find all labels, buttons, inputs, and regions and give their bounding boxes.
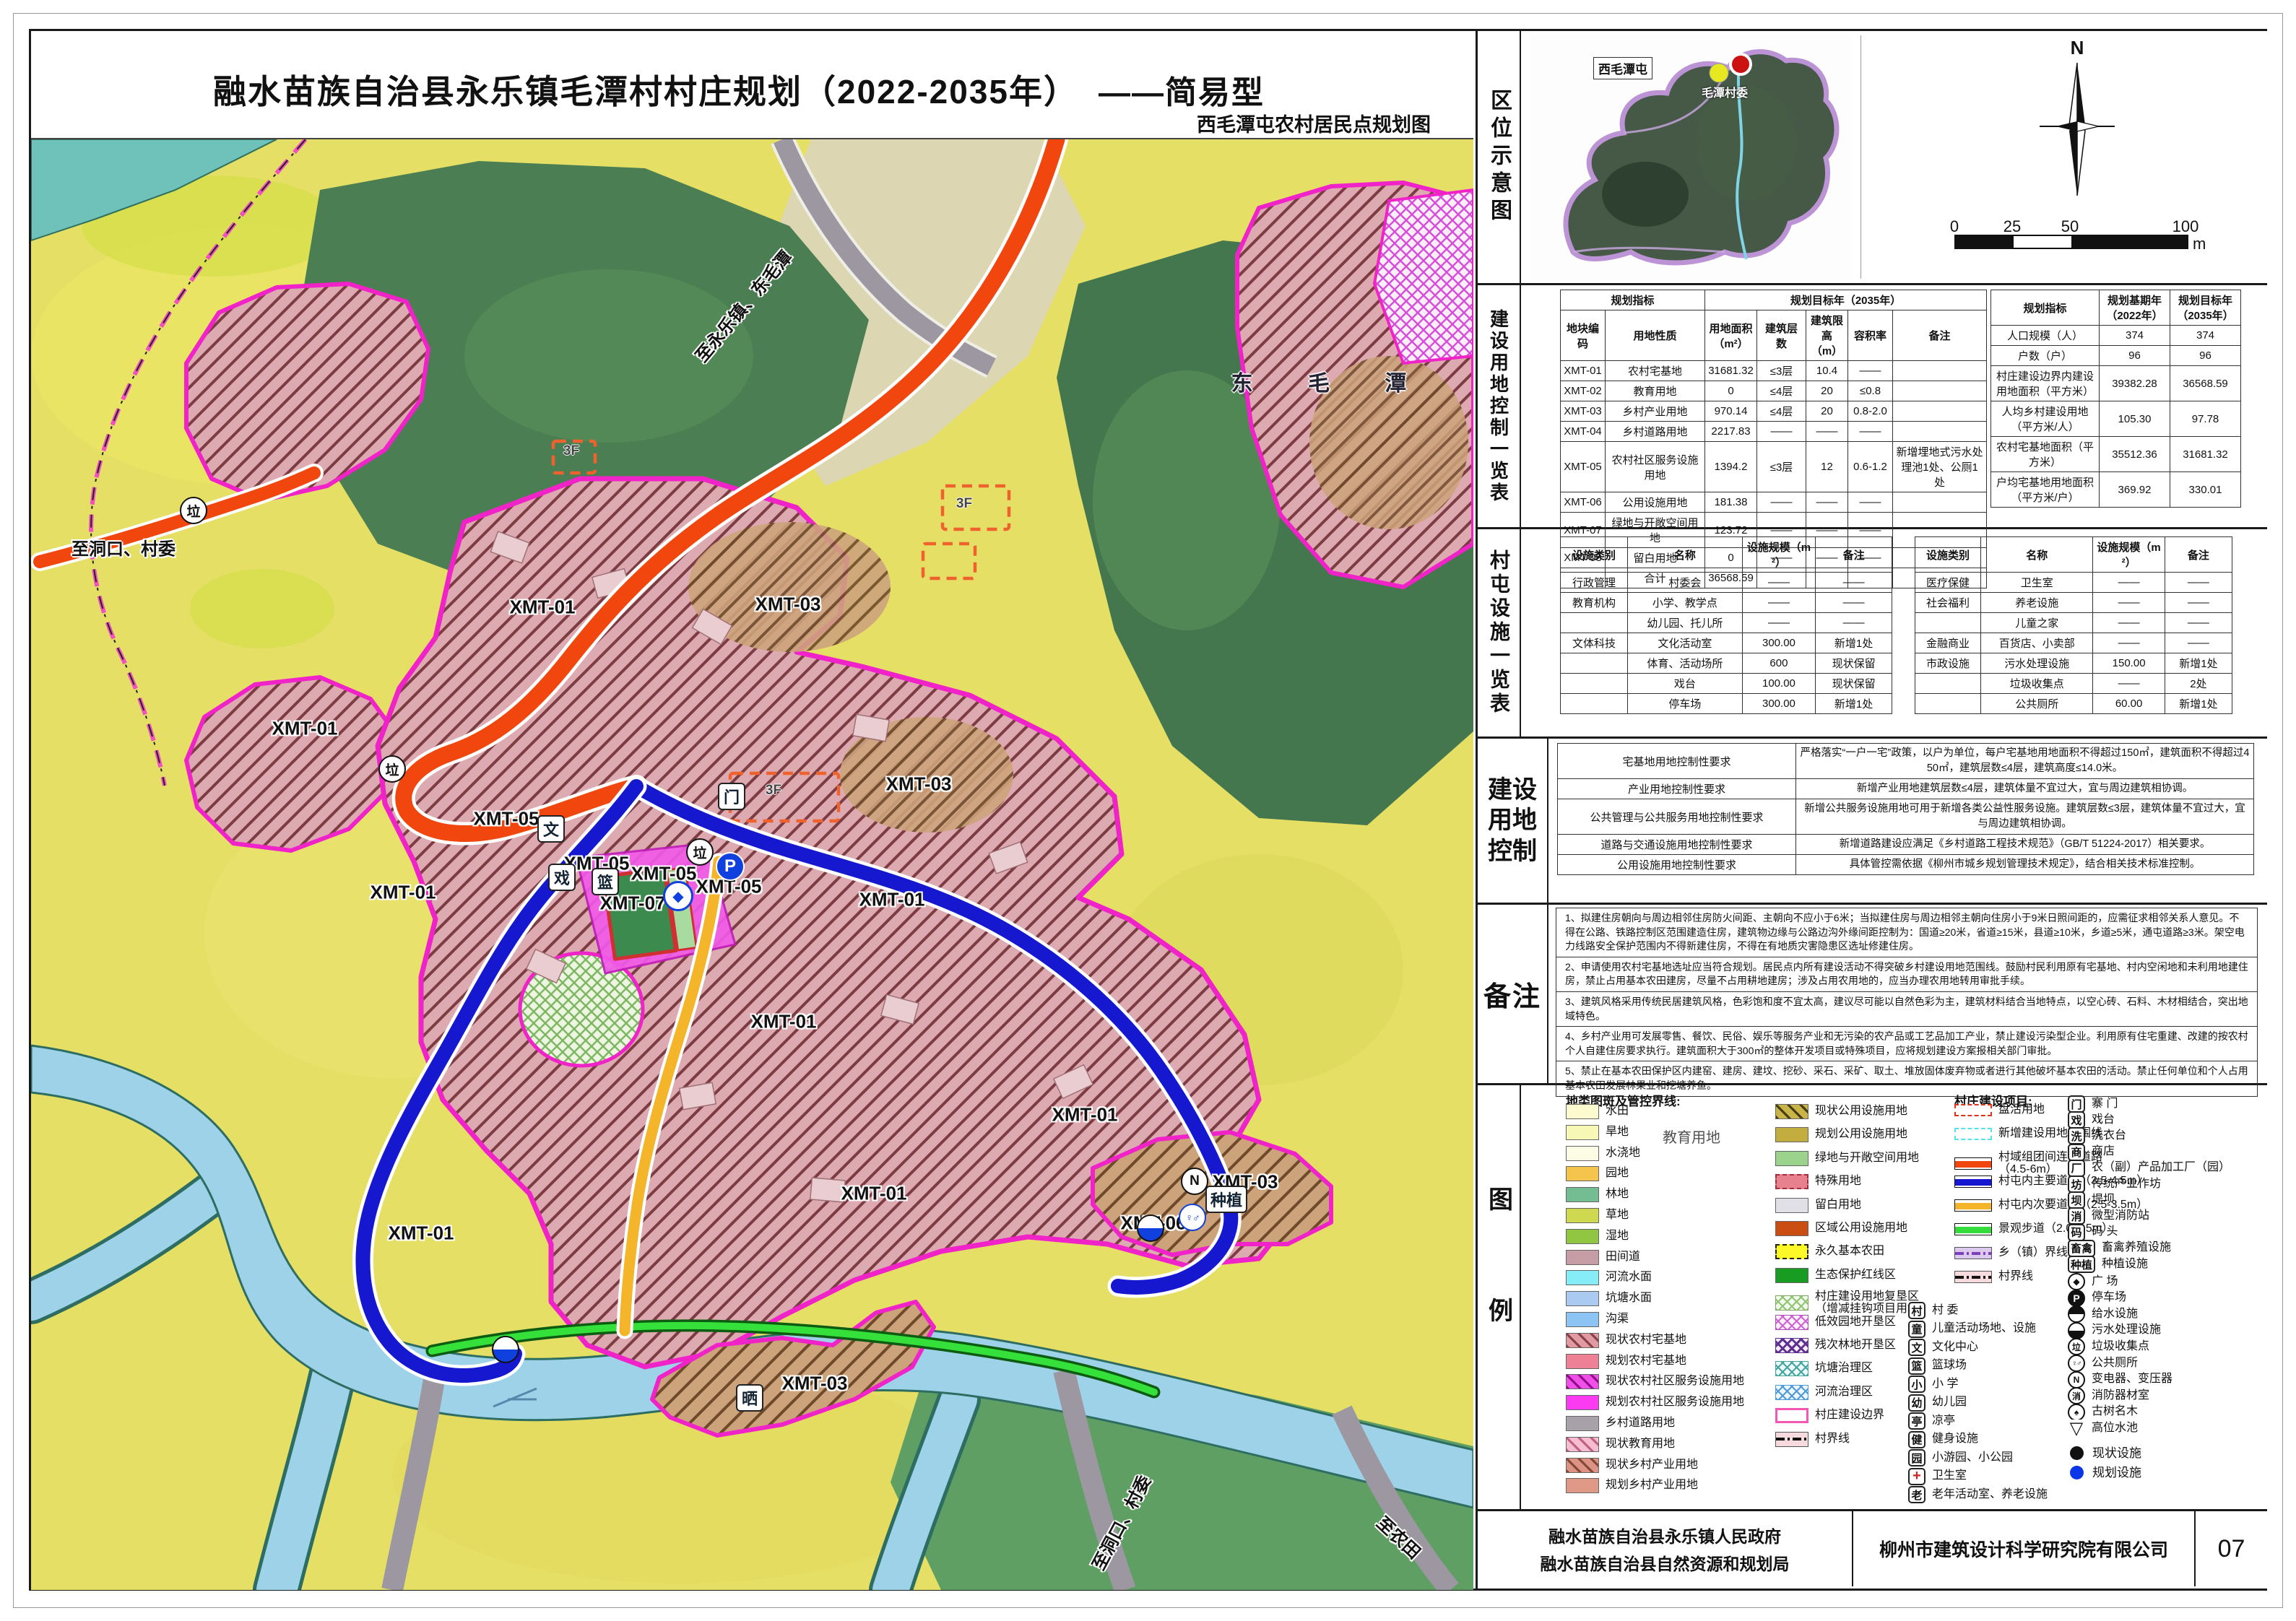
legend-item[interactable]: 村界线: [1775, 1432, 1850, 1447]
map-label: XMT-05: [473, 808, 539, 830]
table-row: XMT-06 公用设施用地 181.38 —— —— ——: [1561, 492, 1987, 513]
legend-item[interactable]: 园地: [1566, 1166, 1629, 1181]
facility-glyph-icon: 消: [2068, 1207, 2085, 1225]
legend-item[interactable]: 盘活用地: [1954, 1104, 2045, 1116]
map-facility-icon[interactable]: 戏: [548, 864, 576, 891]
legend-item[interactable]: 规划公用设施用地: [1775, 1127, 1907, 1142]
location-minimap[interactable]: 西毛潭屯 毛潭村委: [1530, 35, 1852, 279]
legend-item[interactable]: 村界线: [1954, 1271, 2033, 1283]
legend-item[interactable]: 河流治理区: [1775, 1385, 1873, 1400]
legend-swatch: [1566, 1146, 1599, 1161]
table-row: 文体科技 文化活动室 300.00 新增1处: [1561, 633, 1892, 653]
legend-item[interactable]: ◆ 广 场: [2068, 1273, 2118, 1290]
table-row: 戏台 100.00 现状保留: [1561, 674, 1892, 694]
legend-swatch: [1775, 1295, 1808, 1311]
table-row: 教育机构 小学、教学点 —— ——: [1561, 593, 1892, 613]
legend-swatch: [1954, 1223, 1992, 1235]
legend-item[interactable]: 现状农村社区服务设施用地: [1566, 1374, 1744, 1389]
facility-glyph-icon: 园: [1908, 1449, 1925, 1466]
section-notes: 备注 1、拟建住房朝向与周边相邻住房防火间距、主朝向不应小于6米；当拟建住房与周…: [1478, 905, 2267, 1085]
facility-glyph-icon: 童: [1908, 1321, 1925, 1338]
legend-item[interactable]: 码 码 头: [2068, 1224, 2118, 1241]
map-canvas: [31, 139, 1473, 1590]
scale-unit: m: [2193, 235, 2206, 253]
legend-swatch: [1954, 1175, 1992, 1188]
map-label: XMT-01: [1052, 1104, 1117, 1126]
facility-glyph-icon: 老: [1908, 1486, 1925, 1503]
title-text: 融水苗族自治县永乐镇毛潭村村庄规划（2022-2035年）: [213, 73, 1078, 110]
legend-swatch: [1566, 1478, 1599, 1493]
legend-swatch: [1566, 1208, 1599, 1223]
legend-item[interactable]: 水田: [1566, 1104, 1629, 1119]
section-facility-table: 村屯设施一览表 设施类别 名称 设施规模（m²） 备注: [1478, 529, 2267, 739]
legend-item[interactable]: 坑塘治理区: [1775, 1361, 1873, 1376]
facility-glyph-icon: 幼: [1908, 1394, 1925, 1412]
facility-circle-icon: ▽: [2068, 1420, 2085, 1437]
legend-swatch: [1566, 1312, 1599, 1327]
map-label: 东 毛 潭: [1231, 365, 1431, 397]
map-facility-icon[interactable]: ♀♂: [1179, 1204, 1206, 1231]
table-row: 户均宅基地用地面积（平方米/户） 369.92 330.01: [1991, 472, 2241, 508]
table-row: 村庄建设边界内建设用地面积（平方米） 39382.28 36568.59: [1991, 366, 2241, 401]
table-row: 公用设施用地控制性要求 具体管控需依据《柳州市城乡规划管理技术规定》，结合相关技…: [1558, 855, 2254, 875]
section-land-table: 建设用地控制一览表 规划指标 规划目标年（2035年） 地块编码 用地性质: [1478, 285, 2267, 529]
col-header: 备注: [2165, 537, 2232, 573]
facility-circle-icon: [2068, 1322, 2085, 1339]
legend-item[interactable]: P 停车场: [2068, 1290, 2126, 1307]
legend-body: 地类图斑及管控界线: 教育用地 水田 旱地: [1521, 1085, 2267, 1509]
table-row: 公共管理与公共服务用地控制性要求 新增公共服务设施用地可用于新增各类公益性服务设…: [1558, 799, 2254, 835]
col-header: 名称: [1981, 537, 2093, 573]
legend-item[interactable]: 现状公用设施用地: [1775, 1104, 1907, 1119]
facility-table-left: 设施类别 名称 设施规模（m²） 备注 行政管理 村委会: [1560, 536, 1892, 714]
facility-glyph-icon: 畜禽: [2068, 1240, 2095, 1257]
legend-item[interactable]: 永久基本农田: [1775, 1244, 1884, 1259]
legend-swatch: [1566, 1416, 1599, 1431]
legend-swatch: [1566, 1437, 1599, 1452]
col-header: 设施规模（m²）: [1742, 537, 1816, 573]
legend-item[interactable]: 种植 种植设施: [2068, 1256, 2148, 1273]
legend-item[interactable]: 生态保护红线区: [1775, 1268, 1896, 1283]
minimap-committee-label: 毛潭村委: [1702, 83, 1748, 100]
scale-tick: 50: [2061, 217, 2079, 236]
section-title-location: 区位示意图: [1478, 31, 1521, 283]
table-row: 人口规模（人） 374 374: [1991, 326, 2241, 346]
map-facility-icon[interactable]: [1137, 1214, 1164, 1242]
legend-item[interactable]: 规划乡村产业用地: [1566, 1478, 1698, 1493]
legend-swatch: [1566, 1291, 1599, 1306]
facility-circle-icon: 垃: [2068, 1338, 2085, 1355]
legend-swatch: [1775, 1198, 1808, 1213]
scale-bar: 0 25 50 100 m: [1954, 217, 2229, 249]
col-header: 备注: [1816, 537, 1892, 573]
legend-swatch: [1566, 1229, 1599, 1244]
legend-item[interactable]: 健 健身设施: [1908, 1431, 1978, 1448]
map-label: XMT-01: [370, 882, 436, 904]
facility-glyph-icon: 坝: [2068, 1191, 2085, 1209]
map-label: 3F: [563, 443, 579, 459]
table-row: 垃圾收集点 —— 2处: [1915, 674, 2232, 694]
legend-swatch: [1775, 1361, 1808, 1376]
legend-swatch: [1775, 1174, 1808, 1189]
legend-item[interactable]: 区域公用设施用地: [1775, 1221, 1907, 1236]
legend-swatch: [1566, 1250, 1599, 1265]
legend-swatch: [1775, 1104, 1808, 1119]
status-dot-icon: [2070, 1466, 2084, 1479]
legend-item[interactable]: ▽ 高位水池: [2068, 1420, 2138, 1437]
section-title-land: 建设用地控制一览表: [1478, 285, 1521, 527]
legend-swatch: [1566, 1374, 1599, 1389]
legend-item[interactable]: 亭 凉亭: [1908, 1412, 1955, 1430]
map-label: XMT-03: [755, 594, 820, 616]
legend-swatch: [1566, 1104, 1599, 1119]
legend-item[interactable]: 幼 幼儿园: [1908, 1394, 1967, 1412]
legend-item[interactable]: 污水处理设施: [2068, 1322, 2161, 1339]
facility-glyph-icon: 厂: [2068, 1160, 2085, 1177]
col-header: 用地性质: [1606, 310, 1705, 361]
map-label: XMT-01: [272, 718, 337, 740]
table-row: 儿童之家 —— ——: [1915, 613, 2232, 633]
legend-swatch: [1954, 1128, 1992, 1140]
legend-item[interactable]: 戏 戏台: [2068, 1111, 2115, 1129]
map-label: XMT-01: [841, 1183, 906, 1205]
legend-item[interactable]: 水浇地: [1566, 1146, 1640, 1161]
legend-item[interactable]: 消 微型消防站: [2068, 1207, 2149, 1225]
legend-swatch: [1775, 1127, 1808, 1142]
legend-item[interactable]: + 卫生室: [1908, 1468, 1967, 1485]
table-row: 道路与交通设施用地控制性要求 新增道路建设应满足《乡村道路工程技术规范》（GB/…: [1558, 835, 2254, 855]
legend-item[interactable]: 乡村道路用地: [1566, 1416, 1675, 1431]
map-label: XMT-01: [859, 889, 924, 911]
legend-swatch: [1954, 1247, 1992, 1259]
legend-swatch: [1775, 1315, 1808, 1330]
note-row: 1、拟建住房朝向与周边相邻住房防火间距、主朝向不应小于6米；当拟建住房与周边相邻…: [1556, 908, 2258, 957]
legend-swatch: [1775, 1268, 1808, 1283]
page-subtitle: 西毛潭屯农村居民点规划图: [1197, 109, 1431, 137]
map-facility-icon[interactable]: 垃: [686, 838, 714, 866]
col-header: 备注: [1893, 310, 1987, 361]
scale-tick: 100: [2172, 217, 2199, 236]
legend-item[interactable]: 残次林地开垦区: [1775, 1338, 1896, 1353]
legend-swatch: [1775, 1432, 1808, 1447]
facility-glyph-icon: 戏: [2068, 1111, 2085, 1129]
legend-item[interactable]: 草地: [1566, 1208, 1629, 1223]
legend-item[interactable]: 现状农村宅基地: [1566, 1333, 1686, 1348]
facility-glyph-icon: 亭: [1908, 1412, 1925, 1430]
table-row: 社会福利 养老设施 —— ——: [1915, 593, 2232, 613]
map-facility-icon[interactable]: 篮: [592, 868, 619, 895]
col-header: 规划目标年（2035年）: [1705, 290, 1987, 310]
section-location: 区位示意图 西毛潭屯: [1478, 31, 2267, 285]
table-row: 农村宅基地面积（平方米） 35512.36 31681.32: [1991, 437, 2241, 472]
legend-swatch: [1954, 1271, 1992, 1283]
table-row: 体育、活动场所 600 现状保留: [1561, 653, 1892, 674]
col-header: 地块编码: [1561, 310, 1606, 361]
legend-swatch: [1566, 1395, 1599, 1410]
table-row: 医疗保健 卫生室 —— ——: [1915, 573, 2232, 593]
indicator-table: 规划指标 规划基期年（2022年） 规划目标年（2035年） 人口规模（人） 3…: [1990, 290, 2241, 508]
title-row: 融水苗族自治县永乐镇毛潭村村庄规划（2022-2035年）——简易型 西毛潭屯农…: [31, 31, 1476, 138]
table-row: 户数（户） 96 96: [1991, 346, 2241, 366]
north-arrow: N: [2027, 41, 2128, 207]
map-label: XMT-05: [631, 863, 696, 885]
legend-swatch: [1954, 1157, 1992, 1170]
section-control: 建设用地控制 宅基地用地控制性要求 严格落实“一户一宅”政策，以户为单位，每户宅…: [1478, 739, 2267, 905]
legend-item[interactable]: 规划农村宅基地: [1566, 1354, 1686, 1369]
table-row: 人均乡村建设用地（平方米/人） 105.30 97.78: [1991, 401, 2241, 437]
legend-item[interactable]: 现状乡村产业用地: [1566, 1458, 1698, 1473]
col-header: 名称: [1628, 537, 1743, 573]
col-header: 设施类别: [1915, 537, 1981, 573]
legend-item[interactable]: 坑塘水面: [1566, 1291, 1652, 1306]
note-row: 3、建筑风格采用传统民居建筑风格，色彩饱和度不宜太高，建议尽可能以自然色彩为主，…: [1556, 991, 2258, 1026]
facility-glyph-icon: 村: [1908, 1302, 1925, 1319]
footer-org1: 融水苗族自治县永乐镇人民政府: [1548, 1523, 1781, 1547]
facility-glyph-icon: +: [1908, 1468, 1925, 1485]
facility-circle-icon: [2068, 1305, 2085, 1323]
notes-table: 1、拟建住房朝向与周边相邻住房防火间距、主朝向不应小于6米；当拟建住房与周边相邻…: [1556, 908, 2258, 1097]
map-facility-icon[interactable]: 种植: [1205, 1186, 1247, 1213]
legend-item[interactable]: 村 村 委: [1908, 1302, 1958, 1319]
facility-circle-icon: P: [2068, 1290, 2085, 1307]
title-suffix: ——简易型: [1099, 75, 1265, 110]
map-label: 至洞口、村委: [72, 535, 176, 560]
legend-swatch: [1566, 1270, 1599, 1285]
table-row: XMT-02 教育用地 0 ≤4层 20 ≤0.8: [1561, 381, 1987, 401]
facility-circle-icon: 消: [2068, 1387, 2085, 1404]
legend-item[interactable]: 老 老年活动室、养老设施: [1908, 1486, 2048, 1503]
facility-glyph-icon: 洗: [2068, 1127, 2085, 1144]
village-plan-map[interactable]: XMT-01 XMT-03 XMT-01 XMT-05 XMT-01 XMT-0…: [31, 138, 1473, 1590]
map-facility-icon[interactable]: 垃: [378, 755, 406, 783]
legend-swatch: [1566, 1125, 1599, 1140]
col-header: 容积率: [1848, 310, 1893, 361]
north-label: N: [2071, 37, 2084, 59]
legend-swatch: [1775, 1151, 1808, 1166]
legend-item[interactable]: 留白用地: [1775, 1198, 1861, 1213]
location-body: 西毛潭屯 毛潭村委 N: [1521, 31, 2267, 283]
col-header: 设施类别: [1561, 537, 1628, 573]
facility-glyph-icon: 坊: [2068, 1175, 2085, 1193]
facility-glyph-icon: 小: [1908, 1376, 1925, 1393]
map-label: XMT-07: [599, 892, 665, 915]
table-row: XMT-03 乡村产业用地 970.14 ≤4层 20 0.8-2.0: [1561, 401, 1987, 422]
table-row: 金融商业 百货店、小卖部 —— ——: [1915, 633, 2232, 653]
table-row: XMT-01 农村宅基地 31681.32 ≤3层 10.4 ——: [1561, 361, 1987, 381]
table-row: 宅基地用地控制性要求 严格落实“一户一宅”政策，以户为单位，每户宅基地用地面积不…: [1558, 744, 2254, 779]
legend-item[interactable]: N 变电器、变压器: [2068, 1371, 2172, 1389]
map-label: XMT-01: [388, 1222, 454, 1245]
plan-sheet: 融水苗族自治县永乐镇毛潭村村庄规划（2022-2035年）——简易型 西毛潭屯农…: [0, 0, 2296, 1621]
legend-item[interactable]: 洗 洗衣台: [2068, 1127, 2126, 1144]
col-header: 建筑层数: [1757, 310, 1806, 361]
facility-table-right: 设施类别 名称 设施规模（m²） 备注 医疗保健 卫生室: [1915, 536, 2232, 714]
legend-swatch: [1954, 1199, 1992, 1212]
control-table: 宅基地用地控制性要求 严格落实“一户一宅”政策，以户为单位，每户宅基地用地面积不…: [1557, 743, 2254, 875]
page-title: 融水苗族自治县永乐镇毛潭村村庄规划（2022-2035年）——简易型: [31, 66, 1447, 113]
legend-item[interactable]: 消 消防器材室: [2068, 1387, 2149, 1404]
section-title-facility: 村屯设施一览表: [1478, 529, 1521, 736]
legend-item[interactable]: 沟渠: [1566, 1312, 1629, 1327]
map-label: XMT-01: [509, 596, 575, 619]
map-label: 3F: [956, 496, 972, 512]
scale-tick: 25: [2003, 217, 2021, 236]
map-facility-icon[interactable]: P: [716, 852, 745, 881]
legend-item[interactable]: 给水设施: [2068, 1305, 2138, 1323]
table-row: 停车场 300.00 新增1处: [1561, 694, 1892, 714]
facility-glyph-icon: 商: [2068, 1144, 2085, 1161]
map-label: 3F: [766, 783, 781, 799]
legend-item[interactable]: 小 小 学: [1908, 1376, 1958, 1393]
facility-glyph-icon: 健: [1908, 1431, 1925, 1448]
legend-item[interactable]: 湿地: [1566, 1229, 1629, 1244]
footer-company: 柳州市建筑设计科学研究院有限公司: [1853, 1511, 2196, 1586]
legend-item[interactable]: 文 文化中心: [1908, 1339, 1978, 1356]
table-row: 行政管理 村委会 —— ——: [1561, 573, 1892, 593]
legend-swatch: [1775, 1385, 1808, 1400]
legend-item[interactable]: 村庄建设边界: [1775, 1408, 1884, 1423]
table-row: XMT-05 农村社区服务设施用地 1394.2 ≤3层 12 0.6-1.2 …: [1561, 442, 1987, 492]
legend-item[interactable]: 垃 垃圾收集点: [2068, 1338, 2149, 1355]
map-facility-icon[interactable]: 文: [537, 815, 565, 843]
map-label: XMT-03: [885, 773, 951, 796]
section-footer: 融水苗族自治县永乐镇人民政府 融水苗族自治县自然资源和规划局 柳州市建筑设计科学…: [1478, 1511, 2267, 1586]
legend-swatch: [1775, 1244, 1808, 1259]
info-panel: 区位示意图 西毛潭屯: [1476, 31, 2267, 1589]
notes-body: 1、拟建住房朝向与周边相邻住房防火间距、主朝向不应小于6米；当拟建住房与周边相邻…: [1548, 905, 2267, 1083]
control-body: 宅基地用地控制性要求 严格落实“一户一宅”政策，以户为单位，每户宅基地用地面积不…: [1548, 739, 2267, 903]
col-header: 设施规模（m²）: [2093, 537, 2165, 573]
legend-item[interactable]: 乡（镇）界线: [1954, 1247, 2068, 1259]
status-dot-icon: [2070, 1446, 2084, 1460]
facility-glyph-icon: 文: [1908, 1339, 1925, 1356]
facility-table-body: 设施类别 名称 设施规模（m²） 备注 行政管理 村委会: [1521, 529, 2267, 736]
footer-gov: 融水苗族自治县永乐镇人民政府 融水苗族自治县自然资源和规划局: [1478, 1511, 1853, 1586]
table-row: 公共厕所 60.00 新增1处: [1915, 694, 2232, 714]
legend-item[interactable]: 门 寨 门: [2068, 1095, 2118, 1113]
map-facility-icon[interactable]: 晒: [736, 1384, 763, 1412]
col-header: 建筑限高（m）: [1806, 310, 1848, 361]
legend-item[interactable]: 现状设施: [2068, 1446, 2141, 1460]
legend-item[interactable]: 畜禽 畜禽养殖设施: [2068, 1240, 2171, 1257]
col-header: 规划指标: [1561, 290, 1705, 310]
section-title-notes: 备注: [1478, 905, 1548, 1083]
map-label: XMT-01: [750, 1011, 816, 1033]
legend-item[interactable]: 林地: [1566, 1187, 1629, 1202]
legend-item[interactable]: 特殊用地: [1775, 1174, 1861, 1189]
legend-item[interactable]: 田间道: [1566, 1250, 1640, 1265]
facility-circle-icon: N: [2068, 1371, 2085, 1389]
legend-item[interactable]: 低效园地开垦区: [1775, 1315, 1896, 1330]
legend-item[interactable]: 园 小游园、小公园: [1908, 1449, 2013, 1466]
map-facility-icon[interactable]: 垃: [180, 497, 207, 524]
facility-glyph-icon: 种植: [2068, 1256, 2095, 1273]
col-header: 规划基期年（2022年）: [2100, 290, 2170, 326]
legend-item[interactable]: 坊 传统产业作坊: [2068, 1175, 2161, 1193]
scale-tick: 0: [1950, 217, 1959, 236]
legend-item[interactable]: 厂 农（副）产品加工厂（园）: [2068, 1160, 2230, 1177]
minimap-canvas: [1530, 35, 1852, 279]
legend-item[interactable]: 绿地与开敞空间用地: [1775, 1151, 1919, 1166]
legend-item[interactable]: 河流水面: [1566, 1270, 1652, 1285]
table-row: 产业用地控制性要求 新增产业用地建筑层数≤4层，建筑体量不宜过大，宜与周边建筑相…: [1558, 779, 2254, 799]
map-facility-icon[interactable]: 门: [718, 783, 745, 810]
legend-item[interactable]: 篮 篮球场: [1908, 1357, 1967, 1375]
facility-glyph-icon: 码: [2068, 1224, 2085, 1241]
minimap-place-label: 西毛潭屯: [1593, 57, 1652, 79]
facility-circle-icon: ◆: [2068, 1273, 2085, 1290]
table-row: 市政设施 污水处理设施 150.00 新增1处: [1915, 653, 2232, 674]
legend-stray-label: 教育用地: [1663, 1126, 1720, 1147]
note-row: 4、乡村产业用可发展零售、餐饮、民俗、娱乐等服务产业和无污染的农产品或工艺品加工…: [1556, 1027, 2258, 1061]
legend-item[interactable]: 村庄建设用地复垦区 （增减挂钩项目用地）: [1775, 1291, 1931, 1316]
section-legend: 图例 地类图斑及管控界线: 教育用地 水田: [1478, 1085, 2267, 1511]
footer-page-number: 07: [2196, 1511, 2267, 1586]
main-frame: 融水苗族自治县永乐镇毛潭村村庄规划（2022-2035年）——简易型 西毛潭屯农…: [29, 29, 2267, 1591]
map-facility-icon[interactable]: ◆: [663, 881, 693, 911]
facility-circle-icon: ♀♂: [2068, 1355, 2085, 1372]
footer-org2: 融水苗族自治县自然资源和规划局: [1541, 1550, 1790, 1575]
legend-swatch: [1775, 1338, 1808, 1353]
col-header: 规划目标年（2035年）: [2170, 290, 2241, 326]
table-row: XMT-04 乡村道路用地 2217.83 —— —— ——: [1561, 422, 1987, 442]
legend-swatch: [1775, 1408, 1808, 1423]
legend-swatch: [1954, 1104, 1992, 1116]
section-title-legend: 图例: [1478, 1085, 1521, 1509]
table-row: 幼儿园、托儿所 —— ——: [1561, 613, 1892, 633]
legend-swatch: [1566, 1166, 1599, 1181]
note-row: 2、申请使用农村宅基地选址应当符合规划。居民点内所有建设活动不得突破乡村建设用地…: [1556, 957, 2258, 991]
legend-swatch: [1775, 1221, 1808, 1236]
land-table-body: 规划指标 规划目标年（2035年） 地块编码 用地性质 用地面积（m²） 建筑层…: [1521, 285, 2267, 527]
legend-swatch: [1566, 1187, 1599, 1202]
legend-item[interactable]: 规划设施: [2068, 1466, 2141, 1479]
legend-item[interactable]: 现状教育用地: [1566, 1437, 1675, 1452]
col-header: 规划指标: [1991, 290, 2100, 326]
section-title-control: 建设用地控制: [1478, 739, 1548, 903]
legend-item[interactable]: 规划农村社区服务设施用地: [1566, 1395, 1744, 1410]
location-divider: [1860, 35, 1861, 279]
legend-item[interactable]: 坝 堤坝: [2068, 1191, 2115, 1209]
col-header: 用地面积（m²）: [1705, 310, 1757, 361]
map-facility-icon[interactable]: N: [1181, 1168, 1208, 1195]
legend-swatch: [1566, 1354, 1599, 1369]
facility-glyph-icon: 门: [2068, 1095, 2085, 1113]
legend-item[interactable]: 商 商店: [2068, 1144, 2115, 1161]
legend-swatch: [1566, 1458, 1599, 1473]
map-area: 融水苗族自治县永乐镇毛潭村村庄规划（2022-2035年）——简易型 西毛潭屯农…: [31, 31, 1476, 1589]
legend-item[interactable]: 童 儿童活动场地、设施: [1908, 1321, 2036, 1338]
legend-item[interactable]: 旱地: [1566, 1125, 1629, 1140]
map-label: XMT-03: [781, 1373, 847, 1395]
map-facility-icon[interactable]: [492, 1336, 519, 1363]
legend-swatch: [1566, 1333, 1599, 1348]
legend-item[interactable]: ♀♂ 公共厕所: [2068, 1355, 2138, 1372]
facility-glyph-icon: 篮: [1908, 1357, 1925, 1375]
